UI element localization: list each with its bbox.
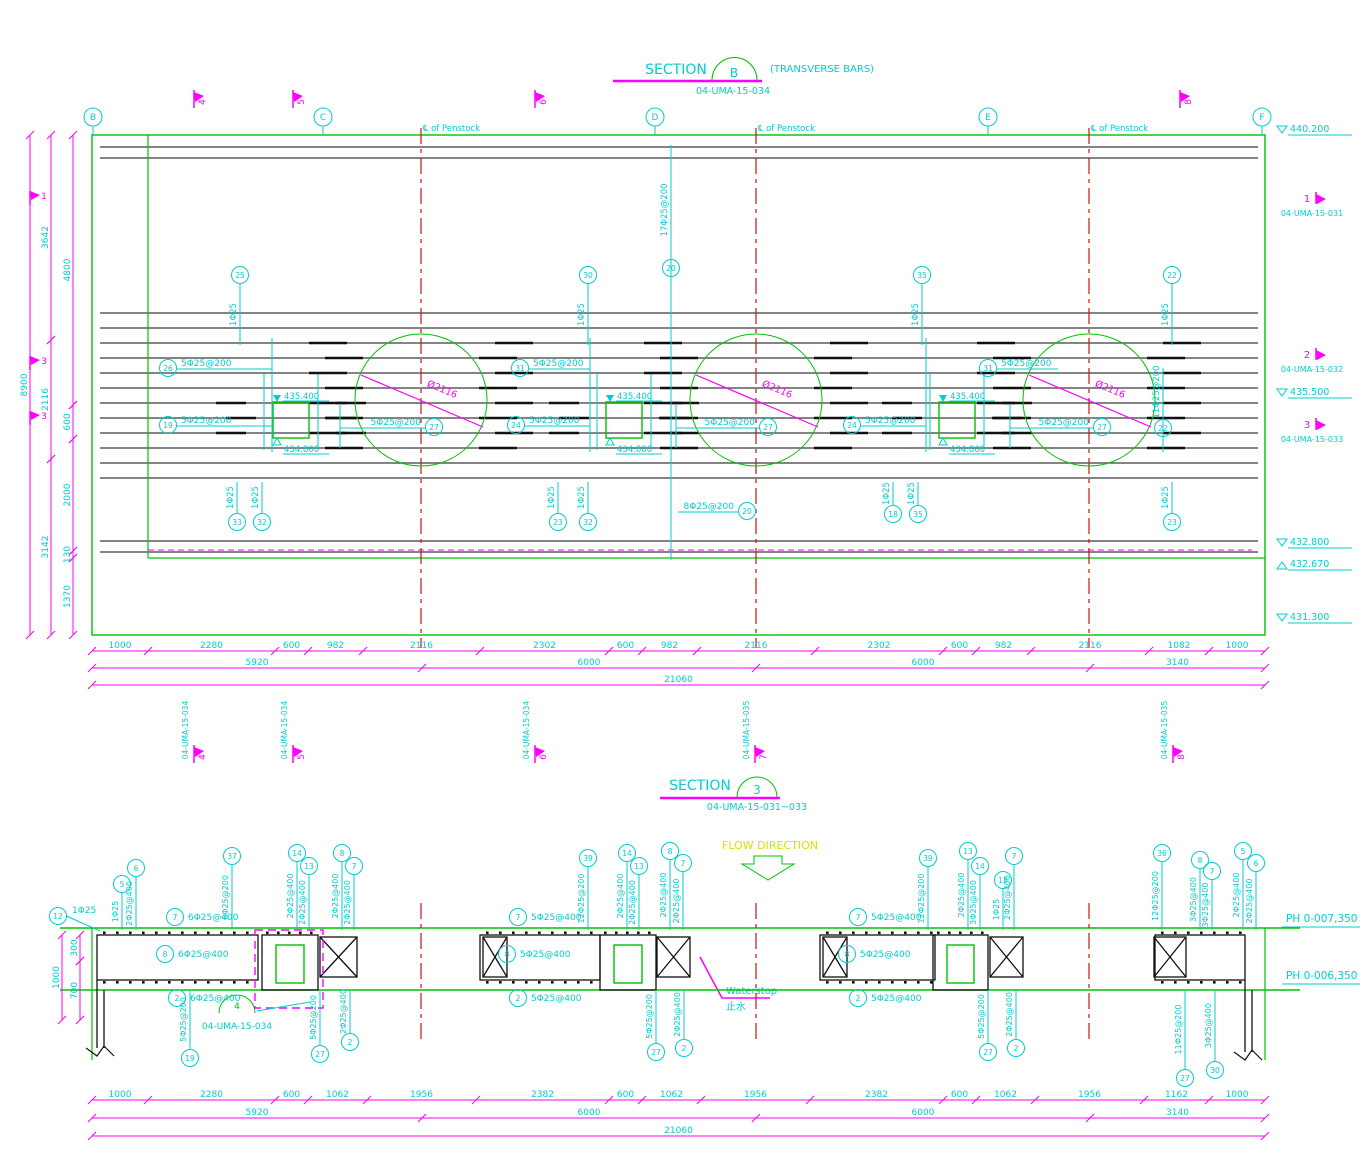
- dim-value: 2116: [41, 388, 51, 411]
- section-flag-number: 1: [41, 192, 47, 202]
- callout-label: 5Φ25@400: [871, 994, 922, 1004]
- section-flag-dwg: 04-UMA-15-035: [742, 701, 751, 760]
- elev-triangle-icon: [1277, 562, 1287, 569]
- rebar-dot: [904, 932, 907, 935]
- rebar-dot: [103, 932, 106, 935]
- rebar-dot: [930, 981, 933, 984]
- callout-number: 12: [53, 912, 63, 921]
- callout-number: 7: [516, 913, 521, 922]
- rebar-dot: [564, 981, 567, 984]
- callout-number: 23: [553, 518, 563, 527]
- rebar-dot: [1226, 932, 1229, 935]
- dim-value: 2280: [200, 1090, 223, 1100]
- dim-value: 600: [951, 1090, 968, 1100]
- rebar-dot: [626, 932, 629, 935]
- rebar-dot: [1213, 932, 1216, 935]
- callout-number: 30: [1210, 1066, 1220, 1075]
- rebar-dot: [590, 981, 593, 984]
- callout-number: 14: [292, 849, 302, 858]
- section-flag-icon: [1316, 350, 1326, 360]
- callout-label: 1Φ25: [251, 486, 261, 509]
- dim-value: 5920: [246, 658, 269, 668]
- cad-drawing: SECTION B (TRANSVERSE BARS) 04-UMA-15-03…: [0, 0, 1363, 1171]
- callout-number: 20: [666, 264, 676, 273]
- callout-label: 6Φ25@400: [188, 913, 239, 923]
- callout-label: 1Φ25: [547, 486, 557, 509]
- pier-opening: [276, 945, 304, 983]
- section-flag-dwg: 04-UMA-15-031: [1281, 209, 1343, 218]
- callout-number: 8: [1198, 856, 1203, 865]
- dim-value: 1956: [1078, 1090, 1101, 1100]
- callout-number: 8: [845, 950, 850, 959]
- dim-value: 1000: [1226, 641, 1249, 651]
- rebar-dot: [1161, 932, 1164, 935]
- rebar-dot: [865, 932, 868, 935]
- slab-block: [1155, 935, 1245, 980]
- callout-label: 8Φ25@200: [684, 502, 735, 512]
- dim-value: 3142: [41, 536, 51, 559]
- dim-value: 2382: [531, 1090, 554, 1100]
- rebar-dot: [207, 932, 210, 935]
- callout-label: 5Φ25@200: [181, 359, 232, 369]
- callout-number: 7: [352, 862, 357, 871]
- rebar-dot: [948, 932, 951, 935]
- section-flag-number: 7: [759, 754, 769, 760]
- callout-label: 5Φ25@200: [179, 997, 188, 1042]
- elev-triangle-icon: [1277, 389, 1287, 396]
- callout-label: 5Φ25@200: [529, 416, 580, 426]
- dim-value: 3642: [41, 226, 51, 249]
- dim-value: 3140: [1166, 658, 1189, 668]
- callout-label: 1Φ25: [111, 901, 120, 923]
- rebar-dot: [564, 932, 567, 935]
- callout-number: 27: [1097, 423, 1107, 432]
- rebar-dot: [155, 981, 158, 984]
- rebar-dot: [168, 932, 171, 935]
- callout-label: 3Φ25@400: [1204, 1003, 1213, 1048]
- section-flag-number: 2: [1304, 350, 1310, 361]
- dim-value: 2116: [1079, 641, 1102, 651]
- callout-label: 5Φ25@200: [865, 416, 916, 426]
- elev-value: 432.670: [1290, 559, 1329, 570]
- dim-value: 21060: [664, 1126, 693, 1136]
- callout-label: 5Φ25@400: [871, 913, 922, 923]
- callout-number: 13: [634, 862, 644, 871]
- dim-value: 300: [70, 939, 80, 956]
- section-3-title-text: SECTION: [669, 778, 731, 794]
- dim-value: 600: [63, 413, 73, 430]
- dim-value: 2382: [865, 1090, 888, 1100]
- callout-label: 1Φ25: [911, 303, 921, 326]
- section-flag-number: 3: [41, 412, 47, 422]
- rebar-dot: [865, 981, 868, 984]
- dim-value: 1000: [109, 1090, 132, 1100]
- dim-value: 1000: [1226, 1090, 1249, 1100]
- callout-number: 36: [1157, 849, 1167, 858]
- callout-number: 6: [134, 864, 139, 873]
- elev-triangle-icon: [1277, 126, 1287, 133]
- rebar-dot: [538, 981, 541, 984]
- callout-number: 2: [856, 994, 861, 1003]
- section-flag-icon: [30, 356, 40, 365]
- elev-value: 431.300: [1290, 612, 1329, 623]
- drawing-canvas: SECTION B (TRANSVERSE BARS) 04-UMA-15-03…: [0, 0, 1363, 1171]
- rebar-dot: [233, 932, 236, 935]
- callout-label: 3Φ25@400: [1189, 877, 1198, 922]
- rebar-dot: [1213, 981, 1216, 984]
- rebar-dot: [904, 981, 907, 984]
- section-flag-number: 3: [1304, 420, 1310, 431]
- callout-number: 7: [1012, 852, 1017, 861]
- callout-label: 2Φ25@400: [343, 880, 352, 925]
- callout-label: 11Φ25@200: [1152, 365, 1162, 418]
- rebar-dot: [220, 981, 223, 984]
- callout-number: 19: [185, 1054, 195, 1063]
- penstock-centerline-label: ℄ of Penstock: [1090, 124, 1148, 134]
- callout-number: 13: [963, 847, 973, 856]
- callout-label: 2Φ25@400: [1245, 879, 1254, 924]
- section-flag-number: 1: [1304, 194, 1310, 205]
- callout-number: 31: [515, 364, 525, 373]
- section-flag-number: 6: [539, 754, 549, 760]
- rebar-dot: [499, 932, 502, 935]
- ph-level-upper: PH 0-007,350: [1286, 913, 1357, 925]
- callout-number: 30: [583, 271, 593, 280]
- dim-value: 6000: [578, 1108, 601, 1118]
- rebar-dot: [1239, 932, 1242, 935]
- dim-value: 1062: [326, 1090, 349, 1100]
- rebar-dot: [194, 981, 197, 984]
- rebar-dot: [930, 932, 933, 935]
- grid-letter: B: [90, 113, 96, 123]
- rebar-dot: [499, 981, 502, 984]
- callout-number: 7: [1210, 867, 1215, 876]
- section-flag-dwg: 04-UMA-15-034: [181, 701, 190, 760]
- section-flag-number: 3: [41, 357, 47, 367]
- rebar-dot: [194, 932, 197, 935]
- rebar-dot: [917, 932, 920, 935]
- rebar-dot: [981, 932, 984, 935]
- callout-number: 27: [429, 423, 439, 432]
- callout-label: 5Φ25@200: [1039, 418, 1090, 428]
- callout-number: 6: [1254, 859, 1259, 868]
- callout-label: 1Φ25: [882, 482, 892, 505]
- callout-label: 2Φ25@400: [1003, 875, 1012, 920]
- flow-direction-arrow-icon: [742, 856, 794, 880]
- dim-value: 6000: [578, 658, 601, 668]
- section-flag-dwg: 04-UMA-15-034: [280, 701, 289, 760]
- section-flag-icon: [1316, 194, 1326, 204]
- leader-line: [67, 916, 101, 931]
- grid-letter: F: [1259, 113, 1264, 123]
- elev-triangle-icon: [273, 395, 281, 402]
- callout-number: 27: [1180, 1074, 1190, 1083]
- section-flag-dwg: 04-UMA-15-033: [1281, 435, 1343, 444]
- section-flag-number: 8: [1184, 99, 1194, 105]
- dim-value: 2302: [868, 641, 891, 651]
- callout-label: 1Φ25: [226, 486, 236, 509]
- rebar-dot: [637, 932, 640, 935]
- rebar-dot: [604, 932, 607, 935]
- elev-triangle-icon: [606, 395, 614, 402]
- section-flag-number: 5: [297, 99, 307, 105]
- rebar-dot: [266, 932, 269, 935]
- pier-block: [600, 935, 656, 990]
- callout-label: 17Φ25@200: [660, 183, 670, 236]
- penstock-centerline-label: ℄ of Penstock: [757, 124, 815, 134]
- section-3-dwg: 04-UMA-15-031~033: [707, 802, 807, 813]
- dim-value: 130: [63, 546, 73, 563]
- rebar-dot: [959, 932, 962, 935]
- dim-value: 1162: [1165, 1090, 1188, 1100]
- callout-label: 1Φ25: [992, 899, 1001, 921]
- callout-label: 2Φ25@400: [628, 880, 637, 925]
- rebar-dot: [486, 932, 489, 935]
- section-b-dwg: 04-UMA-15-034: [696, 86, 770, 97]
- callout-number: 19: [163, 421, 173, 430]
- callout-label: 5Φ25@200: [977, 994, 986, 1039]
- dim-value: 2302: [533, 641, 556, 651]
- section-flag-icon: [1316, 420, 1326, 430]
- callout-number: 14: [622, 849, 632, 858]
- callout-number: 7: [856, 913, 861, 922]
- rebar-dot: [512, 981, 515, 984]
- section-3-bubble: 3: [753, 783, 761, 797]
- rebar-dot: [1161, 981, 1164, 984]
- callout-number: 35: [917, 271, 927, 280]
- rebar-dot: [220, 932, 223, 935]
- callout-label: 1Φ25: [229, 303, 239, 326]
- dim-value: 3140: [1166, 1108, 1189, 1118]
- elev-value: 432.800: [1290, 537, 1329, 548]
- detail-ref-dwg: 04-UMA-15-034: [202, 1022, 272, 1032]
- rebar-dot: [551, 932, 554, 935]
- dim-value: 700: [70, 982, 80, 999]
- callout-label: 5Φ25@200: [181, 416, 232, 426]
- callout-label: 1Φ25: [577, 303, 587, 326]
- dim-value: 2280: [200, 641, 223, 651]
- rebar-dot: [246, 932, 249, 935]
- dim-value: 1062: [994, 1090, 1017, 1100]
- section-b-title-text: SECTION: [645, 62, 707, 78]
- rebar-dot: [551, 981, 554, 984]
- rebar-dot: [103, 981, 106, 984]
- rebar-dot: [129, 932, 132, 935]
- ph-level-lower: PH 0-006,350: [1286, 970, 1357, 982]
- rebar-dot: [299, 932, 302, 935]
- callout-number: 2: [516, 994, 521, 1003]
- callout-label: 1Φ25: [907, 482, 917, 505]
- diameter-label: Ø2116: [1093, 378, 1126, 400]
- leader-line: [257, 1002, 310, 1011]
- rebar-dot: [970, 932, 973, 935]
- callout-number: 8: [505, 950, 510, 959]
- callout-label: 2Φ25@400: [1005, 992, 1014, 1037]
- pier-block: [933, 935, 988, 990]
- callout-label: 11Φ25@200: [1174, 1005, 1183, 1055]
- rebar-dot: [1226, 981, 1229, 984]
- dim-value: 1082: [1168, 641, 1191, 651]
- section-b-title: SECTION B (TRANSVERSE BARS) 04-UMA-15-03…: [613, 58, 874, 97]
- callout-number: 39: [583, 854, 593, 863]
- elev-triangle-icon: [606, 438, 614, 445]
- rebar-dot: [1174, 981, 1177, 984]
- rebar-dot: [142, 981, 145, 984]
- callout-label: 2Φ25@400: [1232, 873, 1241, 918]
- dim-value: 21060: [664, 675, 693, 685]
- rebar-dot: [525, 981, 528, 984]
- rebar-dot: [937, 932, 940, 935]
- callout-label: 2Φ25@400: [659, 873, 668, 918]
- callout-number: 27: [763, 423, 773, 432]
- callout-number: 39: [923, 854, 933, 863]
- dim-value: 1000: [109, 641, 132, 651]
- callout-label: 12Φ25@200: [1151, 871, 1160, 921]
- callout-number: 7: [681, 859, 686, 868]
- callout-number: 18: [888, 510, 898, 519]
- penstock-centerline-label: ℄ of Penstock: [422, 124, 480, 134]
- callout-number: 22: [1158, 424, 1168, 433]
- rebar-dot: [590, 932, 593, 935]
- callout-label: 5Φ25@200: [705, 418, 756, 428]
- callout-number: 5: [1241, 847, 1246, 856]
- callout-number: 37: [227, 852, 237, 861]
- rebar-dot: [233, 981, 236, 984]
- callout-number: 26: [163, 364, 173, 373]
- rebar-dot: [577, 981, 580, 984]
- callout-label: 5Φ25@400: [860, 950, 911, 960]
- elev-triangle-icon: [939, 395, 947, 402]
- callout-number: 23: [1167, 518, 1177, 527]
- callout-number: 7: [173, 913, 178, 922]
- callout-label: 2Φ25@400: [125, 881, 134, 926]
- section-b-bubble: B: [730, 66, 738, 80]
- rebar-dot: [1187, 981, 1190, 984]
- callout-label: 5Φ25@400: [531, 994, 582, 1004]
- callout-label: 2Φ25@400: [616, 874, 625, 919]
- dim-value: 1956: [410, 1090, 433, 1100]
- callout-number: 27: [983, 1048, 993, 1057]
- callout-label: 6Φ25@400: [190, 994, 241, 1004]
- callout-label: 5Φ25@200: [309, 995, 318, 1040]
- callout-number: 25: [235, 271, 245, 280]
- dim-value: 600: [951, 641, 968, 651]
- waterstop-label-en: Waterstop: [726, 986, 777, 997]
- dim-value: 4800: [63, 258, 73, 281]
- break-symbol: [1234, 1050, 1262, 1060]
- callout-label: 1Φ25: [1161, 486, 1171, 509]
- callout-number: 2: [682, 1044, 687, 1053]
- elev-value: 440.200: [1290, 124, 1329, 135]
- callout-number: 22: [1167, 271, 1177, 280]
- callout-number: 32: [257, 518, 267, 527]
- callout-number: 27: [651, 1048, 661, 1057]
- callout-number: 2: [1014, 1044, 1019, 1053]
- callout-number: 27: [315, 1050, 325, 1059]
- pier-opening: [614, 945, 642, 983]
- rebar-dot: [288, 932, 291, 935]
- rebar-dot: [826, 932, 829, 935]
- rebar-dot: [116, 932, 119, 935]
- section-flag-icon: [30, 411, 40, 420]
- callout-number: 24: [847, 421, 857, 430]
- section-b-suffix: (TRANSVERSE BARS): [770, 64, 874, 75]
- rebar-dot: [486, 981, 489, 984]
- callout-number: 24: [511, 421, 521, 430]
- dim-value: 8900: [20, 373, 30, 396]
- callout-number: 5: [120, 880, 125, 889]
- rebar-dot: [181, 981, 184, 984]
- dim-value: 1062: [660, 1090, 683, 1100]
- dim-value: 6000: [912, 1108, 935, 1118]
- callout-number: 13: [304, 862, 314, 871]
- rebar-dot: [826, 981, 829, 984]
- rebar-dot: [1187, 932, 1190, 935]
- rebar-dot: [1239, 981, 1242, 984]
- dim-value: 982: [327, 641, 344, 651]
- callout-label: 5Φ25@200: [533, 359, 584, 369]
- callout-label: 2Φ25@400: [957, 873, 966, 918]
- grid-letter: C: [320, 113, 326, 123]
- rebar-dot: [1200, 932, 1203, 935]
- callout-number: 31: [983, 364, 993, 373]
- rebar-dot: [1174, 932, 1177, 935]
- rebar-dot: [116, 981, 119, 984]
- callout-label: 1Φ25: [577, 486, 587, 509]
- elev-triangle-icon: [1277, 614, 1287, 621]
- section-flag-dwg: 04-UMA-15-035: [1160, 701, 1169, 760]
- rebar-dot: [839, 932, 842, 935]
- pier-block: [262, 935, 318, 990]
- rebar-dot: [129, 981, 132, 984]
- callout-label: 1Φ25: [1161, 303, 1171, 326]
- rebar-dot: [577, 932, 580, 935]
- waterstop-label-zh: 止水: [726, 1001, 746, 1013]
- flow-direction-label: FLOW DIRECTION: [722, 839, 818, 852]
- rebar-dot: [615, 932, 618, 935]
- dim-value: 6000: [912, 658, 935, 668]
- section-flag-icon: [30, 191, 40, 200]
- diameter-label: Ø2116: [425, 378, 458, 400]
- callout-number: 32: [583, 518, 593, 527]
- callout-label: 5Φ25@400: [531, 913, 582, 923]
- elev-value: 435.500: [1290, 387, 1329, 398]
- callout-label: 2Φ25@400: [331, 874, 340, 919]
- rebar-dot: [512, 932, 515, 935]
- callout-label: 2Φ25@400: [672, 879, 681, 924]
- dim-value: 982: [661, 641, 678, 651]
- section-flag-dwg: 04-UMA-15-032: [1281, 365, 1343, 374]
- callout-number: 35: [913, 510, 923, 519]
- callout-number: 14: [975, 862, 985, 871]
- break-symbol: [86, 1046, 114, 1056]
- diameter-label: Ø2116: [760, 378, 793, 400]
- rebar-dot: [839, 981, 842, 984]
- rebar-dot: [207, 981, 210, 984]
- dim-value: 982: [995, 641, 1012, 651]
- section-flag-number: 6: [539, 99, 549, 105]
- section-3-title: SECTION 3 04-UMA-15-031~033: [660, 777, 807, 813]
- dim-value: 2116: [410, 641, 433, 651]
- callout-label: 2Φ25@400: [339, 989, 348, 1034]
- elev-triangle-icon: [273, 438, 281, 445]
- rebar-dot: [917, 981, 920, 984]
- callout-label: 5Φ25@200: [371, 418, 422, 428]
- rebar-dot: [277, 932, 280, 935]
- callout-label: 5Φ25@200: [1001, 359, 1052, 369]
- callout-number: 33: [232, 518, 242, 527]
- rebar-dot: [310, 932, 313, 935]
